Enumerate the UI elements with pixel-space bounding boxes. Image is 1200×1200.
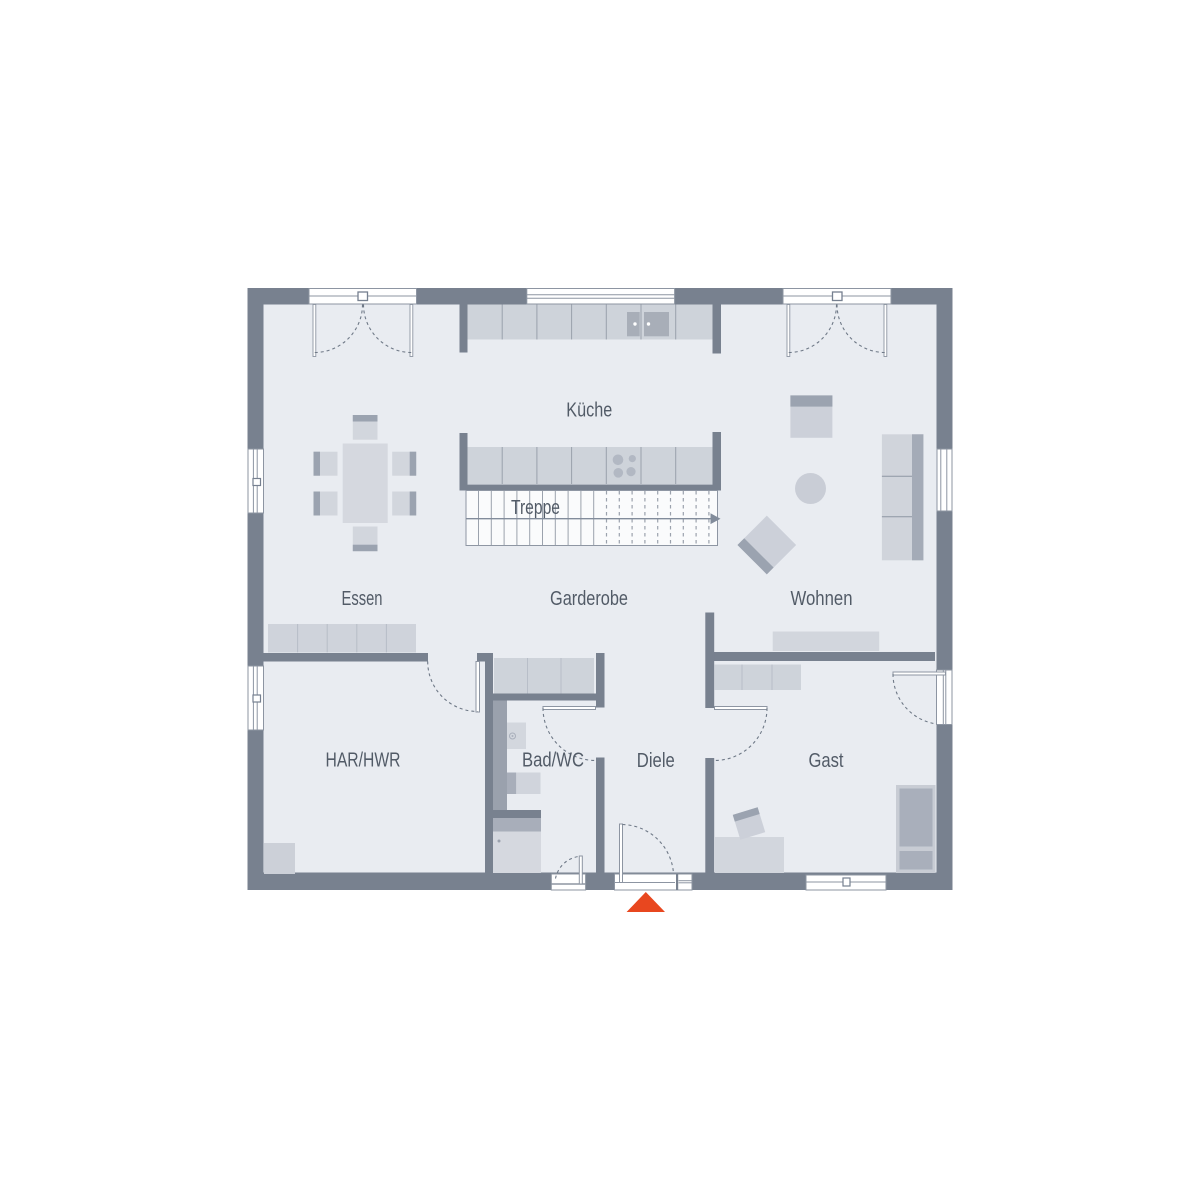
svg-text:Essen: Essen <box>342 587 383 610</box>
svg-text:HAR/HWR: HAR/HWR <box>326 749 401 772</box>
svg-text:Bad/WC: Bad/WC <box>522 749 584 772</box>
svg-text:Garderobe: Garderobe <box>550 587 628 610</box>
svg-text:Diele: Diele <box>637 749 675 772</box>
svg-text:Gast: Gast <box>809 749 844 772</box>
svg-text:Wohnen: Wohnen <box>791 587 853 610</box>
svg-text:Küche: Küche <box>566 399 612 422</box>
svg-text:Treppe: Treppe <box>511 496 560 519</box>
